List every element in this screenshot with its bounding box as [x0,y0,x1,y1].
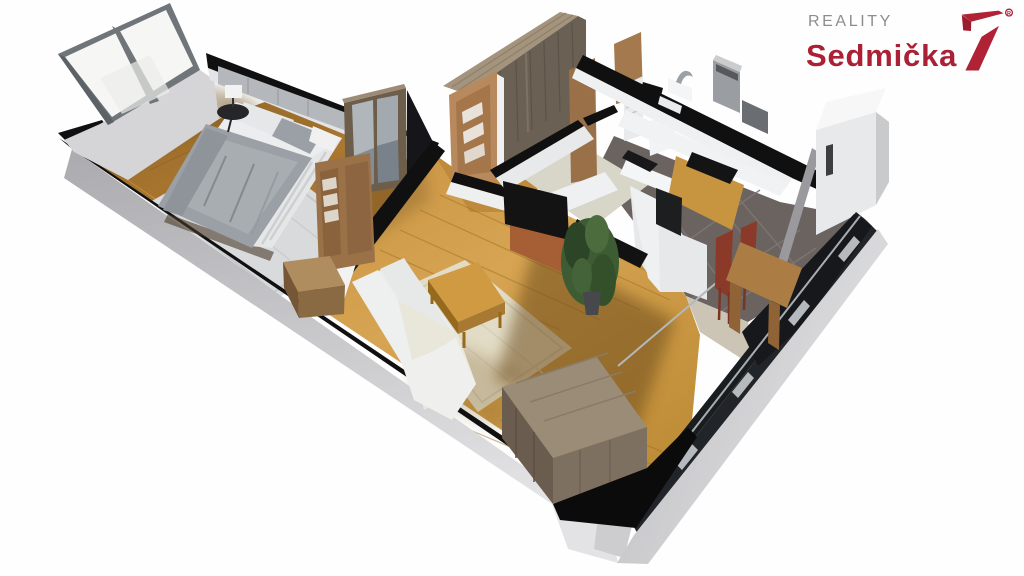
svg-text:R: R [1007,11,1011,17]
